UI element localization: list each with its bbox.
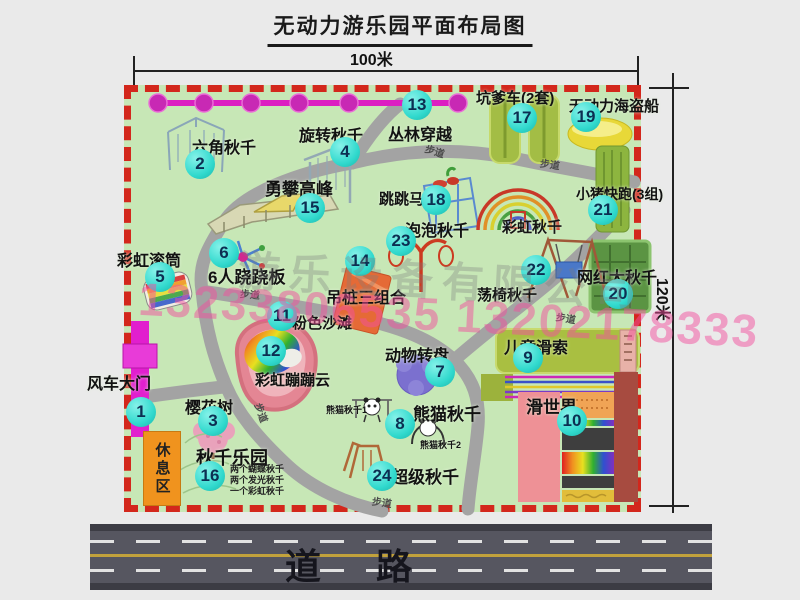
attraction-badge-11: 11	[267, 301, 297, 331]
attraction-badge-3: 3	[198, 406, 228, 436]
attraction-badge-12: 12	[256, 336, 286, 366]
attraction-badge-4: 4	[330, 137, 360, 167]
attraction-badge-14: 14	[345, 246, 375, 276]
walkway-label-5: 步道	[252, 401, 273, 425]
extra-label-2: 熊猫秋千1	[326, 403, 367, 416]
extra-label-1: 彩虹秋千	[502, 216, 562, 237]
attraction-label-22: 荡椅秋千	[477, 284, 537, 305]
attraction-label-8: 熊猫秋千	[413, 400, 481, 425]
road-edge	[90, 524, 712, 531]
attraction-badge-1: 1	[126, 397, 156, 427]
attraction-badge-24: 24	[367, 461, 397, 491]
attraction-label-1: 风车大门	[87, 370, 151, 394]
extra-label-3: 熊猫秋千2	[420, 438, 461, 451]
attraction-label-11: 粉色沙滩	[292, 312, 352, 333]
attraction-label-24: 超级秋千	[391, 463, 459, 488]
attraction-notes-16: 两个蝴蝶秋千两个发光秋千一个彩虹秋千	[230, 464, 284, 497]
attraction-badge-2: 2	[185, 149, 215, 179]
attraction-badge-20: 20	[603, 279, 633, 309]
attraction-badge-22: 22	[521, 255, 551, 285]
park-layout-screenshot: 无动力游乐园平面布局图 100米 120米	[0, 0, 800, 600]
road-label: 道路	[285, 538, 467, 590]
attraction-badge-13: 13	[402, 90, 432, 120]
attraction-badge-16: 16	[195, 461, 225, 491]
attraction-badge-6: 6	[209, 238, 239, 268]
walkway-label-6: 步道	[371, 493, 393, 511]
attraction-badge-19: 19	[571, 102, 601, 132]
attraction-badge-17: 17	[507, 103, 537, 133]
attraction-label-12: 彩虹蹦蹦云	[255, 369, 330, 390]
attraction-badge-23: 23	[386, 226, 416, 256]
labels-overlay: 风车大门1六角秋千2樱花树3旋转秋千4彩虹滚筒56人跷跷板6动物转盘7熊猫秋千8…	[0, 0, 800, 600]
attraction-badge-5: 5	[145, 262, 175, 292]
attraction-badge-7: 7	[425, 357, 455, 387]
attraction-badge-8: 8	[385, 409, 415, 439]
walkway-label-4: 步道	[555, 308, 577, 326]
attraction-label-21: 小猪快跑(3组)	[576, 184, 663, 204]
attraction-badge-9: 9	[513, 343, 543, 373]
walkway-label-2: 步道	[539, 155, 561, 173]
attraction-badge-10: 10	[557, 406, 587, 436]
attraction-label-13: 丛林穿越	[388, 121, 452, 145]
attraction-badge-21: 21	[588, 195, 618, 225]
attraction-label-18: 跳跳马	[379, 188, 424, 209]
attraction-label-14: 吊桩三组合	[326, 284, 406, 308]
attraction-badge-15: 15	[295, 193, 325, 223]
attraction-badge-18: 18	[421, 185, 451, 215]
